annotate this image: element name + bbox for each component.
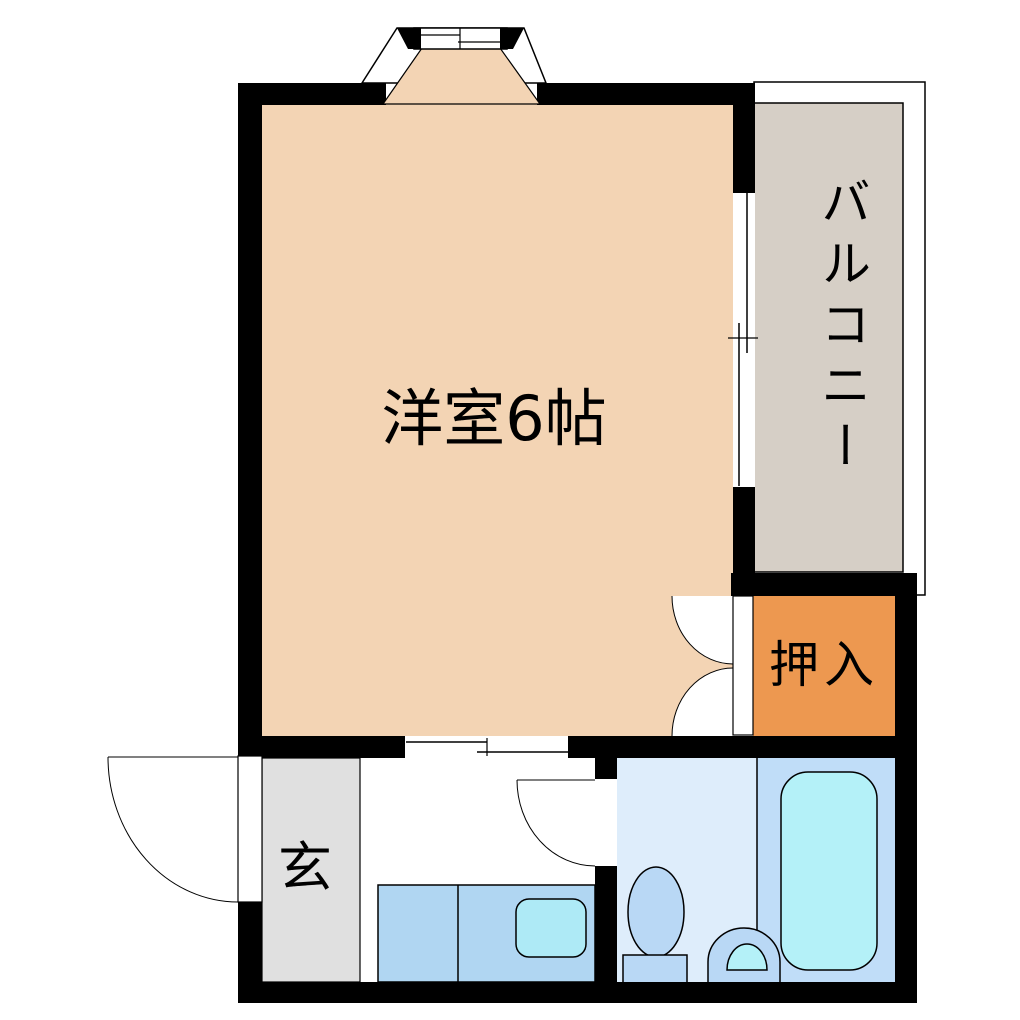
closet-door-leaves (733, 596, 753, 735)
bathroom-door (517, 779, 617, 866)
balcony-window-opening (733, 193, 755, 487)
wall-kitchen-bath-upper (595, 758, 617, 779)
apartment-floor-plan: 洋室6帖 バルコニー 押入 玄 (0, 0, 1020, 1020)
wall-right-lower (895, 573, 917, 1003)
bathroom-door-swing-arc (517, 780, 595, 866)
kitchen (378, 885, 595, 982)
wall-kitchen-bath-lower (595, 866, 617, 982)
wall-under-balcony (731, 573, 917, 596)
bathtub (781, 772, 877, 970)
wall-right-upper (733, 83, 755, 193)
bathroom-door-opening (595, 779, 617, 866)
closet-label: 押入 (753, 639, 895, 695)
entrance-door-swing-arc (108, 757, 238, 902)
balcony-label: バルコニー (810, 156, 868, 501)
kitchen-window (405, 736, 568, 758)
main-room-label: 洋室6帖 (334, 386, 654, 456)
toilet-tank (623, 955, 687, 983)
entrance-label: 玄 (256, 840, 354, 898)
floor-plan-drawing (0, 0, 1020, 1020)
wall-mid-horizontal-left (238, 736, 405, 758)
wall-mid-horizontal-right (568, 736, 917, 758)
wall-bottom (238, 982, 917, 1003)
wall-top-right (537, 83, 755, 105)
kitchen-sink (516, 899, 586, 957)
wall-left-upper (238, 83, 262, 756)
wall-right-mid (733, 487, 755, 573)
toilet-bowl (628, 867, 684, 957)
entrance-door (108, 756, 262, 902)
